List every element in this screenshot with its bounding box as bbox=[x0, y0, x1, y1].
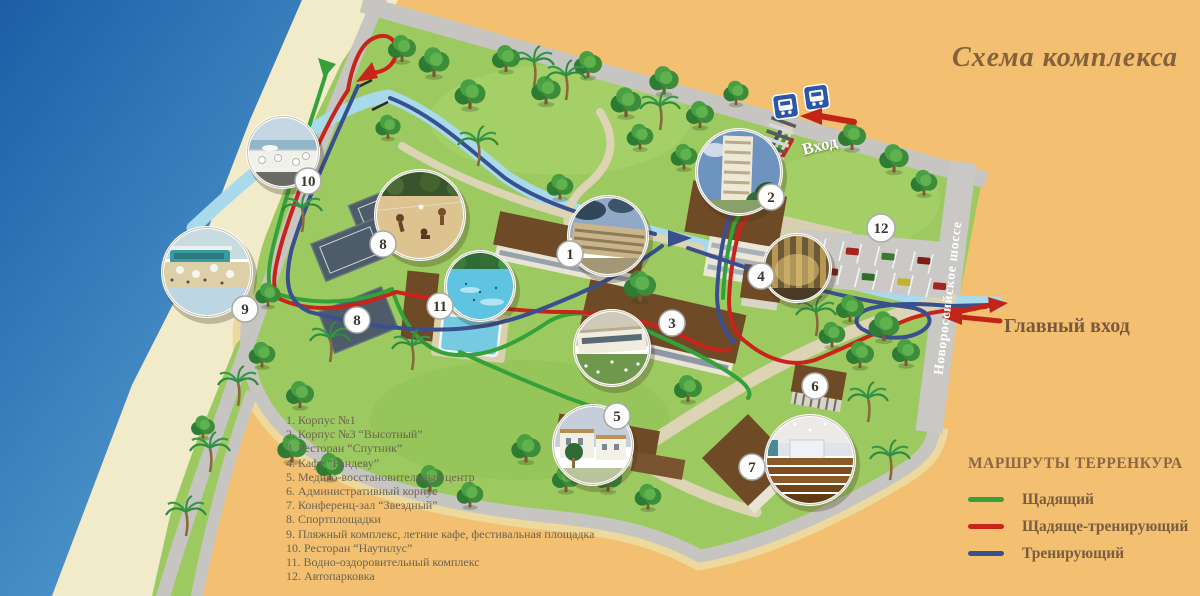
main-entrance-label: Главный вход bbox=[1004, 315, 1130, 338]
legend-item: 12. Автопарковка bbox=[286, 569, 594, 583]
svg-text:8: 8 bbox=[379, 237, 387, 253]
svg-text:2: 2 bbox=[767, 190, 775, 206]
legend-item: 6. Административный корпус bbox=[286, 484, 594, 498]
locations-legend: 1. Корпус №1 2. Корпус №3 “Высотный” 3. … bbox=[286, 413, 594, 583]
route-row-moderate: Щадяще-тренирующий bbox=[968, 513, 1188, 540]
route-swatch-red bbox=[968, 524, 1004, 529]
legend-item: 1. Корпус №1 bbox=[286, 413, 594, 427]
legend-item: 8. Спортплощадки bbox=[286, 512, 594, 526]
routes-legend: МАРШРУТЫ ТЕРРЕНКУРА Щадящий Щадяще-трени… bbox=[968, 455, 1188, 567]
badge-8a: 8 bbox=[370, 231, 396, 257]
svg-text:5: 5 bbox=[613, 409, 621, 425]
svg-text:1: 1 bbox=[566, 247, 574, 263]
route-label: Тренирующий bbox=[1022, 545, 1124, 563]
badge-1: 1 bbox=[557, 241, 583, 267]
bus-stop-icon-2 bbox=[803, 84, 830, 111]
badge-9: 9 bbox=[232, 296, 258, 322]
legend-item: 2. Корпус №3 “Высотный” bbox=[286, 427, 594, 441]
svg-text:6: 6 bbox=[811, 379, 819, 395]
svg-text:9: 9 bbox=[241, 302, 249, 318]
route-row-gentle: Щадящий bbox=[968, 486, 1188, 513]
svg-text:7: 7 bbox=[748, 460, 756, 476]
svg-text:12: 12 bbox=[874, 221, 889, 237]
legend-item: 3. Ресторан “Спутник” bbox=[286, 441, 594, 455]
badge-8b: 8 bbox=[344, 307, 370, 333]
badge-10: 10 bbox=[295, 168, 321, 194]
bus-stop-icon bbox=[772, 93, 799, 120]
route-swatch-green bbox=[968, 497, 1004, 502]
route-swatch-blue bbox=[968, 551, 1004, 556]
badge-5: 5 bbox=[604, 403, 630, 429]
svg-text:4: 4 bbox=[757, 269, 765, 285]
legend-item: 10. Ресторан “Наутилус” bbox=[286, 541, 594, 555]
badge-7: 7 bbox=[739, 454, 765, 480]
badge-6: 6 bbox=[802, 373, 828, 399]
route-label: Щадяще-тренирующий bbox=[1022, 518, 1188, 536]
svg-text:11: 11 bbox=[433, 299, 447, 315]
page-title: Схема комплекса bbox=[952, 42, 1192, 74]
svg-text:10: 10 bbox=[301, 174, 316, 190]
badge-3: 3 bbox=[659, 310, 685, 336]
resort-map-scheme: Новороссийское шоссе bbox=[0, 0, 1200, 596]
legend-item: 4. Кафе “Рандеву” bbox=[286, 456, 594, 470]
legend-item: 5. Медико-восстановительный центр bbox=[286, 470, 594, 484]
routes-legend-header: МАРШРУТЫ ТЕРРЕНКУРА bbox=[968, 455, 1188, 473]
svg-text:3: 3 bbox=[668, 316, 676, 332]
badge-11: 11 bbox=[427, 293, 453, 319]
route-row-training: Тренирующий bbox=[968, 540, 1188, 567]
badge-12: 12 bbox=[867, 214, 895, 242]
legend-item: 11. Водно-оздоровительный комплекс bbox=[286, 555, 594, 569]
legend-item: 7. Конференц-зал “Звездный” bbox=[286, 498, 594, 512]
legend-item: 9. Пляжный комплекс, летние кафе, фестив… bbox=[286, 527, 594, 541]
route-label: Щадящий bbox=[1022, 491, 1094, 509]
svg-text:8: 8 bbox=[353, 313, 361, 329]
badge-4: 4 bbox=[748, 263, 774, 289]
badge-2: 2 bbox=[758, 184, 784, 210]
